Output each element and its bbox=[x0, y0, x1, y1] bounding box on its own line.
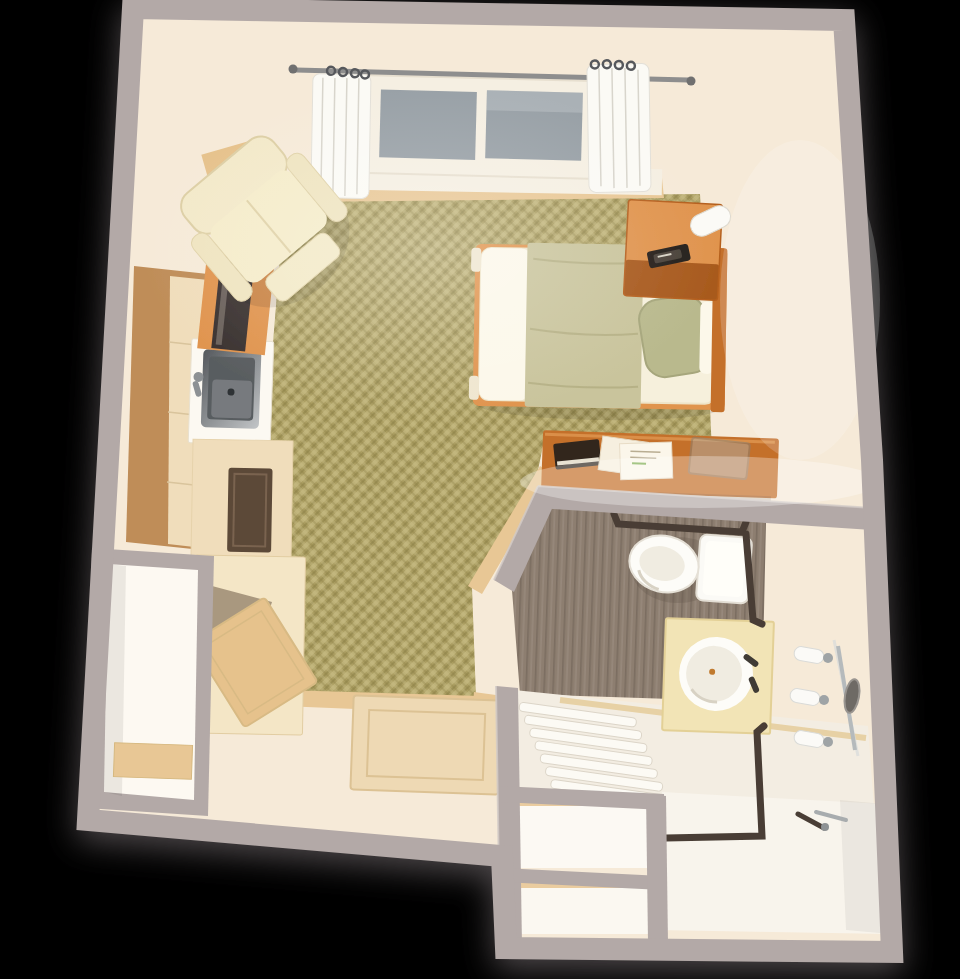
vanity bbox=[662, 618, 774, 734]
kitchen-lower-cabinet bbox=[191, 439, 293, 565]
closet-shelf bbox=[113, 743, 192, 780]
apartment bbox=[86, 8, 892, 952]
entry bbox=[350, 695, 501, 794]
room-glow bbox=[140, 80, 720, 420]
bath-glow bbox=[520, 456, 880, 508]
storage-cubbies bbox=[512, 800, 648, 934]
rod-finial-right bbox=[687, 77, 696, 86]
shower bbox=[656, 792, 890, 934]
floorplan-canvas: Top-down 3D floor plan of a studio apart… bbox=[0, 0, 960, 979]
rod-finial-left bbox=[289, 65, 298, 74]
floorplan-render: Top-down 3D floor plan of a studio apart… bbox=[0, 0, 960, 979]
